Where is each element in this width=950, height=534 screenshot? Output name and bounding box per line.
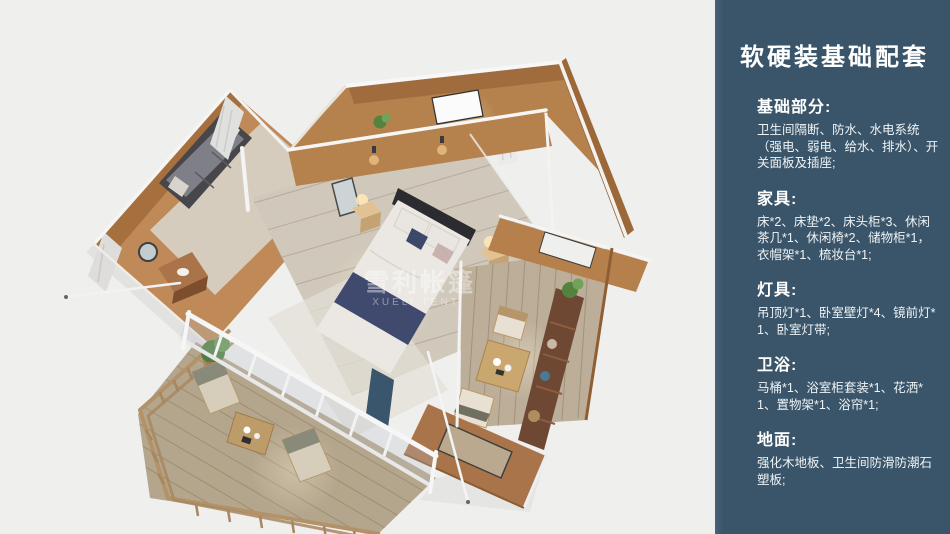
panel-title: 软硬装基础配套 bbox=[740, 44, 932, 72]
section-heading: 家具: bbox=[757, 191, 939, 209]
wall-lamp bbox=[372, 146, 376, 153]
section-basics: 基础部分: 卫生间隔断、防水、水电系统（强电、弱电、给水、排水）、开关面板及插座… bbox=[757, 99, 939, 172]
section-body: 强化木地板、卫生间防滑防潮石塑板; bbox=[757, 455, 939, 488]
section-bath: 卫浴: 马桶*1、浴室柜套装*1、花洒*1、置物架*1、浴帘*1; bbox=[757, 357, 939, 413]
watermark-cn: 雪利帐篷 bbox=[364, 268, 476, 297]
section-lighting: 灯具: 吊顶灯*1、卧室壁灯*4、镜前灯*1、卧室灯带; bbox=[757, 282, 939, 338]
section-heading: 地面: bbox=[757, 432, 939, 450]
section-body: 床*2、床垫*2、床头柜*3、休闲茶几*1、休闲椅*2、储物柜*1，衣帽架*1、… bbox=[757, 214, 939, 264]
section-furniture: 家具: 床*2、床垫*2、床头柜*3、休闲茶几*1、休闲椅*2、储物柜*1，衣帽… bbox=[757, 191, 939, 264]
section-heading: 卫浴: bbox=[757, 357, 939, 375]
tent-render: 雪利帐篷 XUELI TENT bbox=[0, 0, 715, 534]
blue-vase bbox=[540, 371, 550, 381]
section-body: 马桶*1、浴室柜套装*1、花洒*1、置物架*1、浴帘*1; bbox=[757, 380, 939, 413]
section-body: 吊顶灯*1、卧室壁灯*4、镜前灯*1、卧室灯带; bbox=[757, 305, 939, 338]
section-body: 卫生间隔断、防水、水电系统（强电、弱电、给水、排水）、开关面板及插座; bbox=[757, 122, 939, 172]
info-panel: 软硬装基础配套 基础部分: 卫生间隔断、防水、水电系统（强电、弱电、给水、排水）… bbox=[715, 0, 950, 534]
slide: 雪利帐篷 XUELI TENT 软硬装基础配套 基础部分: 卫生间隔断、防水、水… bbox=[0, 0, 950, 534]
watermark: 雪利帐篷 XUELI TENT bbox=[364, 268, 476, 308]
section-heading: 基础部分: bbox=[757, 99, 939, 117]
section-flooring: 地面: 强化木地板、卫生间防滑防潮石塑板; bbox=[757, 432, 939, 488]
wall-lamp bbox=[440, 136, 444, 143]
watermark-en: XUELI TENT bbox=[372, 297, 460, 308]
section-heading: 灯具: bbox=[757, 282, 939, 300]
round-mirror bbox=[139, 243, 157, 261]
